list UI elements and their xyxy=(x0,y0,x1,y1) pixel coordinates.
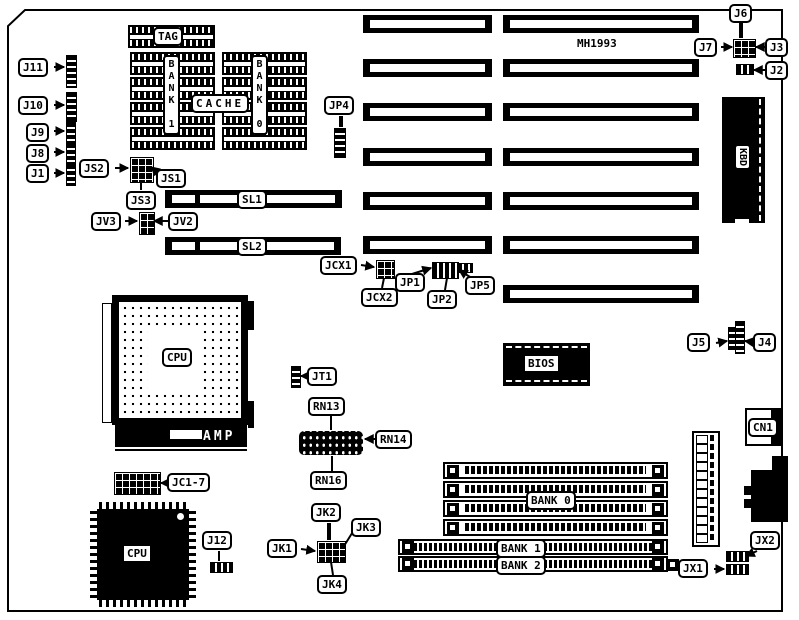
isa-slot xyxy=(363,15,492,33)
jumper-j8 xyxy=(66,143,76,165)
qfp-pins-bottom xyxy=(99,600,187,607)
label-jv3: JV3 xyxy=(91,212,121,231)
label-cpu-socket: CPU xyxy=(162,348,192,367)
label-j11: J11 xyxy=(18,58,48,77)
label-amp: AMP xyxy=(203,429,235,444)
power-connector xyxy=(692,431,720,547)
amp-connector-slot xyxy=(170,430,202,439)
label-j12: J12 xyxy=(202,531,232,550)
label-cpu-qfp: CPU xyxy=(123,545,151,562)
label-jx2: JX2 xyxy=(750,531,780,550)
board-title: MH1993 xyxy=(577,37,617,50)
label-sl2: SL2 xyxy=(237,237,267,256)
label-cache-bank0: BANK 0 xyxy=(251,55,268,135)
jumper-j2 xyxy=(736,64,754,75)
qfp-pin1-dot xyxy=(177,513,184,520)
jumper-j10 xyxy=(66,92,77,122)
label-j3: J3 xyxy=(765,38,788,57)
jumper-j12 xyxy=(210,562,233,573)
din-connector-pin xyxy=(744,499,752,508)
label-bank2: BANK 2 xyxy=(496,556,546,575)
simm-socket-bank0 xyxy=(443,462,668,479)
label-j9: J9 xyxy=(26,123,49,142)
jumper-jx2 xyxy=(726,551,749,562)
label-j6: J6 xyxy=(729,4,752,23)
din-connector xyxy=(751,470,788,522)
simm-socket-bank0 xyxy=(443,519,668,536)
qfp-pins-right xyxy=(189,511,196,598)
label-j7: J7 xyxy=(694,38,717,57)
label-rn14: RN14 xyxy=(375,430,412,449)
jumper-jv-block xyxy=(139,212,155,235)
jumper-jp1-jp2 xyxy=(432,262,459,279)
jumper-j4 xyxy=(735,321,745,354)
label-cache-bank1: BANK 1 xyxy=(163,55,180,135)
amp-connector-line xyxy=(115,449,247,451)
jumper-jp5 xyxy=(457,263,473,273)
label-jk4: JK4 xyxy=(317,575,347,594)
label-js3: JS3 xyxy=(126,191,156,210)
jumper-jk-block xyxy=(317,541,346,563)
label-rn16: RN16 xyxy=(310,471,347,490)
label-bios: BIOS xyxy=(524,355,559,372)
jumper-jp4 xyxy=(334,128,346,158)
label-js2: JS2 xyxy=(79,159,109,178)
din-connector-pin xyxy=(744,486,752,495)
label-jc1-7: JC1-7 xyxy=(167,473,210,492)
label-jt1: JT1 xyxy=(307,367,337,386)
label-tag: TAG xyxy=(153,27,183,46)
isa-slot xyxy=(363,59,492,77)
label-j10: J10 xyxy=(18,96,48,115)
label-j4: J4 xyxy=(753,333,776,352)
label-jv2: JV2 xyxy=(168,212,198,231)
label-jcx1: JCX1 xyxy=(320,256,357,275)
isa-slot xyxy=(363,103,492,121)
isa-slot xyxy=(503,285,699,303)
isa-slot xyxy=(503,59,699,77)
qfp-pins-top xyxy=(99,502,187,509)
label-jp2: JP2 xyxy=(427,290,457,309)
jumper-jc1-7 xyxy=(114,472,161,495)
jumper-jcx xyxy=(376,260,395,279)
label-bank0: BANK 0 xyxy=(526,491,576,510)
jumper-j6-j7-j3 xyxy=(733,39,756,58)
label-rn13: RN13 xyxy=(308,397,345,416)
jumper-jx1 xyxy=(726,564,749,575)
label-j5: J5 xyxy=(687,333,710,352)
label-jp4: JP4 xyxy=(324,96,354,115)
label-kbd: KBD xyxy=(734,144,751,170)
qfp-pins-left xyxy=(90,511,97,598)
jumper-j9 xyxy=(66,122,76,144)
label-jx1: JX1 xyxy=(678,559,708,578)
motherboard-diagram: MH1993 SL1 SL2 TAG BANK 1 BANK 0 CACHE J… xyxy=(0,0,799,620)
isa-slot xyxy=(503,15,699,33)
label-jp5: JP5 xyxy=(465,276,495,295)
label-cn1: CN1 xyxy=(748,418,778,437)
jumper-js-block xyxy=(130,157,154,183)
cpu-socket-tab xyxy=(248,301,254,330)
label-j1: J1 xyxy=(26,164,49,183)
isa-slot xyxy=(503,236,699,254)
isa-slot xyxy=(503,192,699,210)
label-j2: J2 xyxy=(765,61,788,80)
jumper-j11 xyxy=(66,55,77,88)
cpu-socket-tab xyxy=(248,401,254,428)
jumper-j1 xyxy=(66,164,76,186)
isa-slot xyxy=(503,103,699,121)
label-cache: CACHE xyxy=(191,94,249,113)
label-sl1: SL1 xyxy=(237,190,267,209)
label-js1: JS1 xyxy=(156,169,186,188)
label-j8: J8 xyxy=(26,144,49,163)
label-jcx2: JCX2 xyxy=(361,288,398,307)
isa-slot xyxy=(363,192,492,210)
isa-slot xyxy=(363,236,492,254)
isa-slot xyxy=(503,148,699,166)
label-jp1: JP1 xyxy=(395,273,425,292)
label-jk3: JK3 xyxy=(351,518,381,537)
cpu-socket-lever xyxy=(102,303,112,423)
isa-slot xyxy=(363,148,492,166)
label-jk2: JK2 xyxy=(311,503,341,522)
resistor-network xyxy=(299,431,363,455)
label-jk1: JK1 xyxy=(267,539,297,558)
jumper-jt1 xyxy=(291,366,301,388)
